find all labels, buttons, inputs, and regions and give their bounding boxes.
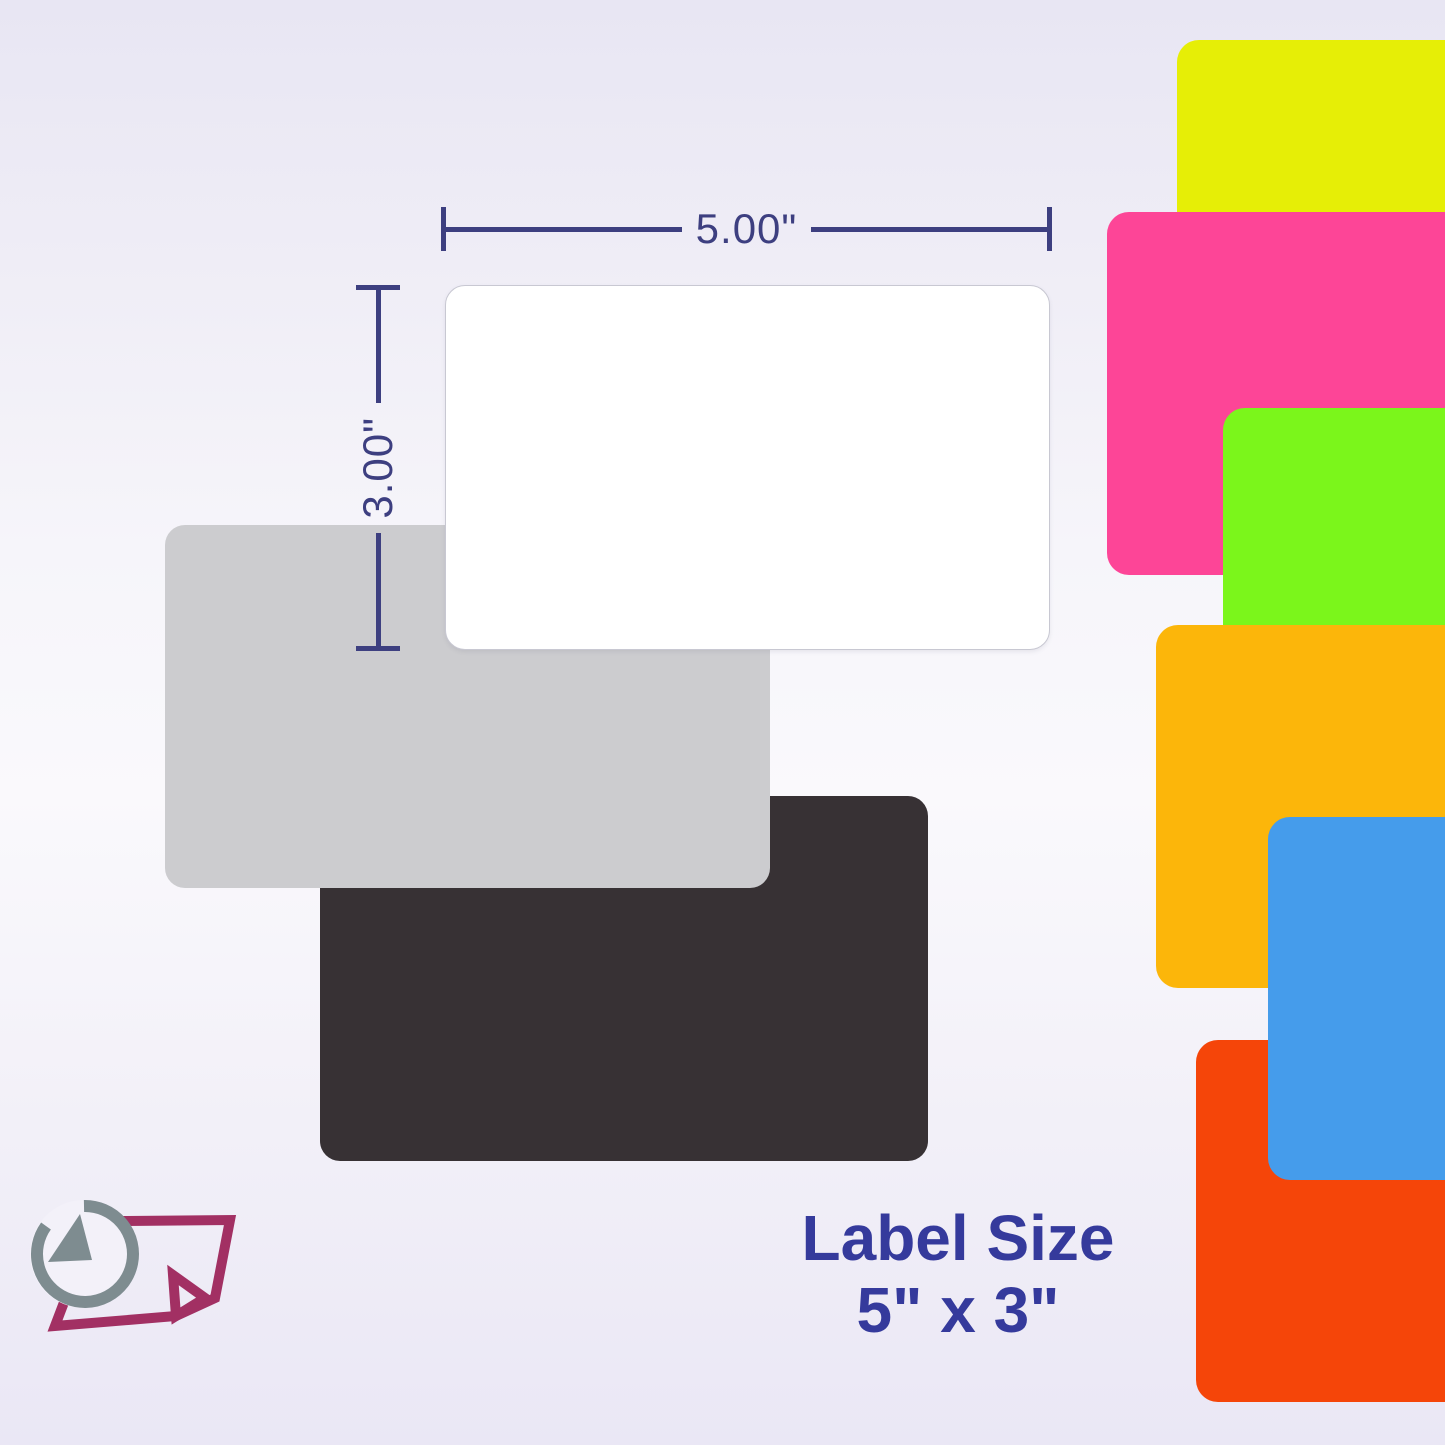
width-dim-right-cap	[1047, 207, 1052, 251]
width-dim-line-left	[446, 227, 682, 232]
height-dim-bottom-cap	[356, 646, 400, 651]
width-dimension-value: 5.00"	[682, 205, 812, 253]
brand-logo	[30, 1190, 245, 1358]
product-image: 5.00" 3.00" Label Size 5" x 3"	[0, 0, 1445, 1445]
height-dim-line-bottom	[376, 533, 381, 646]
caption-line2: 5" x 3"	[708, 1274, 1208, 1346]
caption: Label Size 5" x 3"	[708, 1202, 1208, 1346]
caption-line1: Label Size	[708, 1202, 1208, 1274]
height-dimension: 3.00"	[356, 285, 400, 651]
height-dim-line-top	[376, 290, 381, 403]
height-dimension-value: 3.00"	[354, 403, 402, 533]
white-label	[445, 285, 1050, 650]
width-dimension: 5.00"	[441, 207, 1052, 251]
blue-label	[1268, 817, 1445, 1180]
width-dim-line-right	[811, 227, 1047, 232]
